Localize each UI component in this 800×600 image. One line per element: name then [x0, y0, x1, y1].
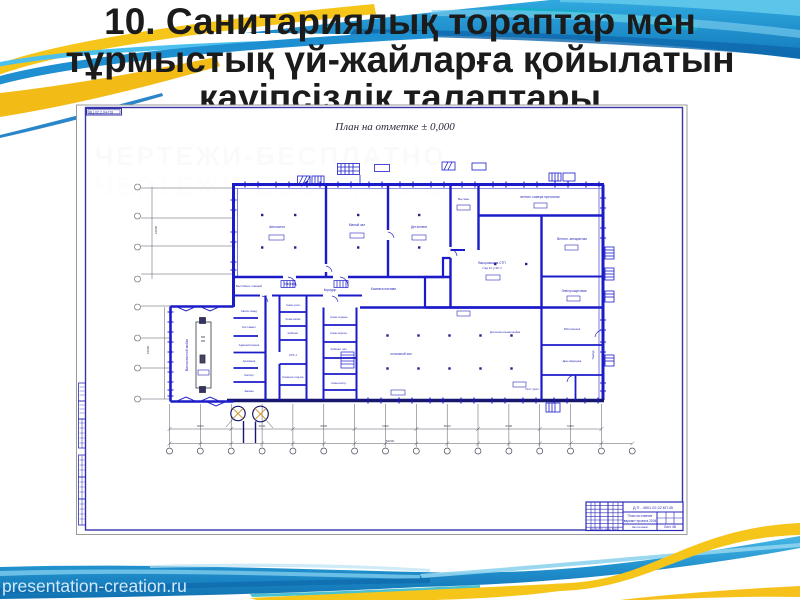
svg-text:Кабинет: Кабинет: [288, 331, 299, 335]
svg-text:Раб.комната: Раб.комната: [564, 327, 581, 331]
svg-text:6000: 6000: [259, 424, 266, 428]
svg-text:Вытяжн.: Вытяжн.: [458, 197, 470, 201]
svg-text:Вестибюль главный: Вестибюль главный: [236, 284, 262, 288]
svg-text:Кабинет нач.: Кабинет нач.: [331, 347, 348, 351]
svg-text:Тамбур: Тамбур: [591, 350, 595, 360]
svg-text:Вакц.машина СТП: Вакц.машина СТП: [478, 261, 506, 265]
svg-text:Заказы: Заказы: [244, 389, 253, 393]
svg-text:t=вд 12 у=20 Ч: t=вд 12 у=20 Ч: [483, 266, 502, 270]
svg-text:6000: 6000: [567, 424, 574, 428]
svg-text:Пост урал: Пост урал: [525, 387, 539, 391]
svg-text:Кассир: Кассир: [244, 373, 254, 377]
svg-text:Малый зал: Малый зал: [349, 223, 366, 227]
svg-text:Коридор: Коридор: [324, 288, 337, 292]
svg-text:Кост.авант: Кост.авант: [242, 325, 256, 329]
svg-text:Администрация: Администрация: [239, 343, 260, 347]
svg-text:Комн.инстр.: Комн.инстр.: [331, 381, 347, 385]
svg-text:Касса-товед: Касса-товед: [241, 309, 257, 313]
svg-text:Магазин: Магазин: [284, 282, 297, 286]
svg-text:ЧЕРТЕЖИ-БЕСПЛАТНО: ЧЕРТЕЖИ-БЕСПЛАТНО: [95, 141, 447, 171]
svg-text:КУХ-1: КУХ-1: [289, 353, 297, 357]
svg-text:Комната отдыха: Комната отдыха: [283, 375, 304, 379]
svg-text:Электрощитовая: Электрощитовая: [561, 289, 586, 293]
svg-text:ВЦ.02.2.04-ПЗ: ВЦ.02.2.04-ПЗ: [89, 110, 113, 114]
svg-text:Комн.узла: Комн.узла: [286, 303, 300, 307]
svg-text:Автосалон: Автосалон: [269, 225, 285, 229]
svg-text:Деж.сварщика: Деж.сварщика: [563, 359, 582, 363]
svg-text:6000: 6000: [444, 424, 451, 428]
svg-text:Комната наставн.: Комната наставн.: [371, 287, 397, 291]
svg-text:6000: 6000: [320, 424, 327, 428]
svg-text:вентил. камера приточная: вентил. камера приточная: [520, 195, 559, 199]
svg-text:План на отметке ± 0,000: План на отметке ± 0,000: [334, 121, 455, 133]
svg-text:Комн.охраны: Комн.охраны: [330, 315, 347, 319]
svg-text:24000: 24000: [154, 225, 158, 234]
svg-text:остальной зал: остальной зал: [390, 352, 412, 356]
svg-text:6000: 6000: [197, 424, 204, 428]
svg-text:Дет.зелени: Дет.зелени: [411, 225, 427, 229]
svg-text:Вентил. аппаратная: Вентил. аппаратная: [557, 237, 587, 241]
svg-text:6000: 6000: [382, 424, 389, 428]
svg-text:Комн.связи: Комн.связи: [286, 317, 301, 321]
svg-text:Ванна ванной мойки: Ванна ванной мойки: [185, 339, 189, 371]
svg-text:Комн.персон.: Комн.персон.: [330, 331, 348, 335]
svg-text:18000: 18000: [146, 345, 150, 354]
svg-text:Архивная: Архивная: [243, 359, 256, 363]
svg-text:Дополнительная мойка: Дополнительная мойка: [490, 330, 521, 334]
svg-text:6000: 6000: [506, 424, 513, 428]
